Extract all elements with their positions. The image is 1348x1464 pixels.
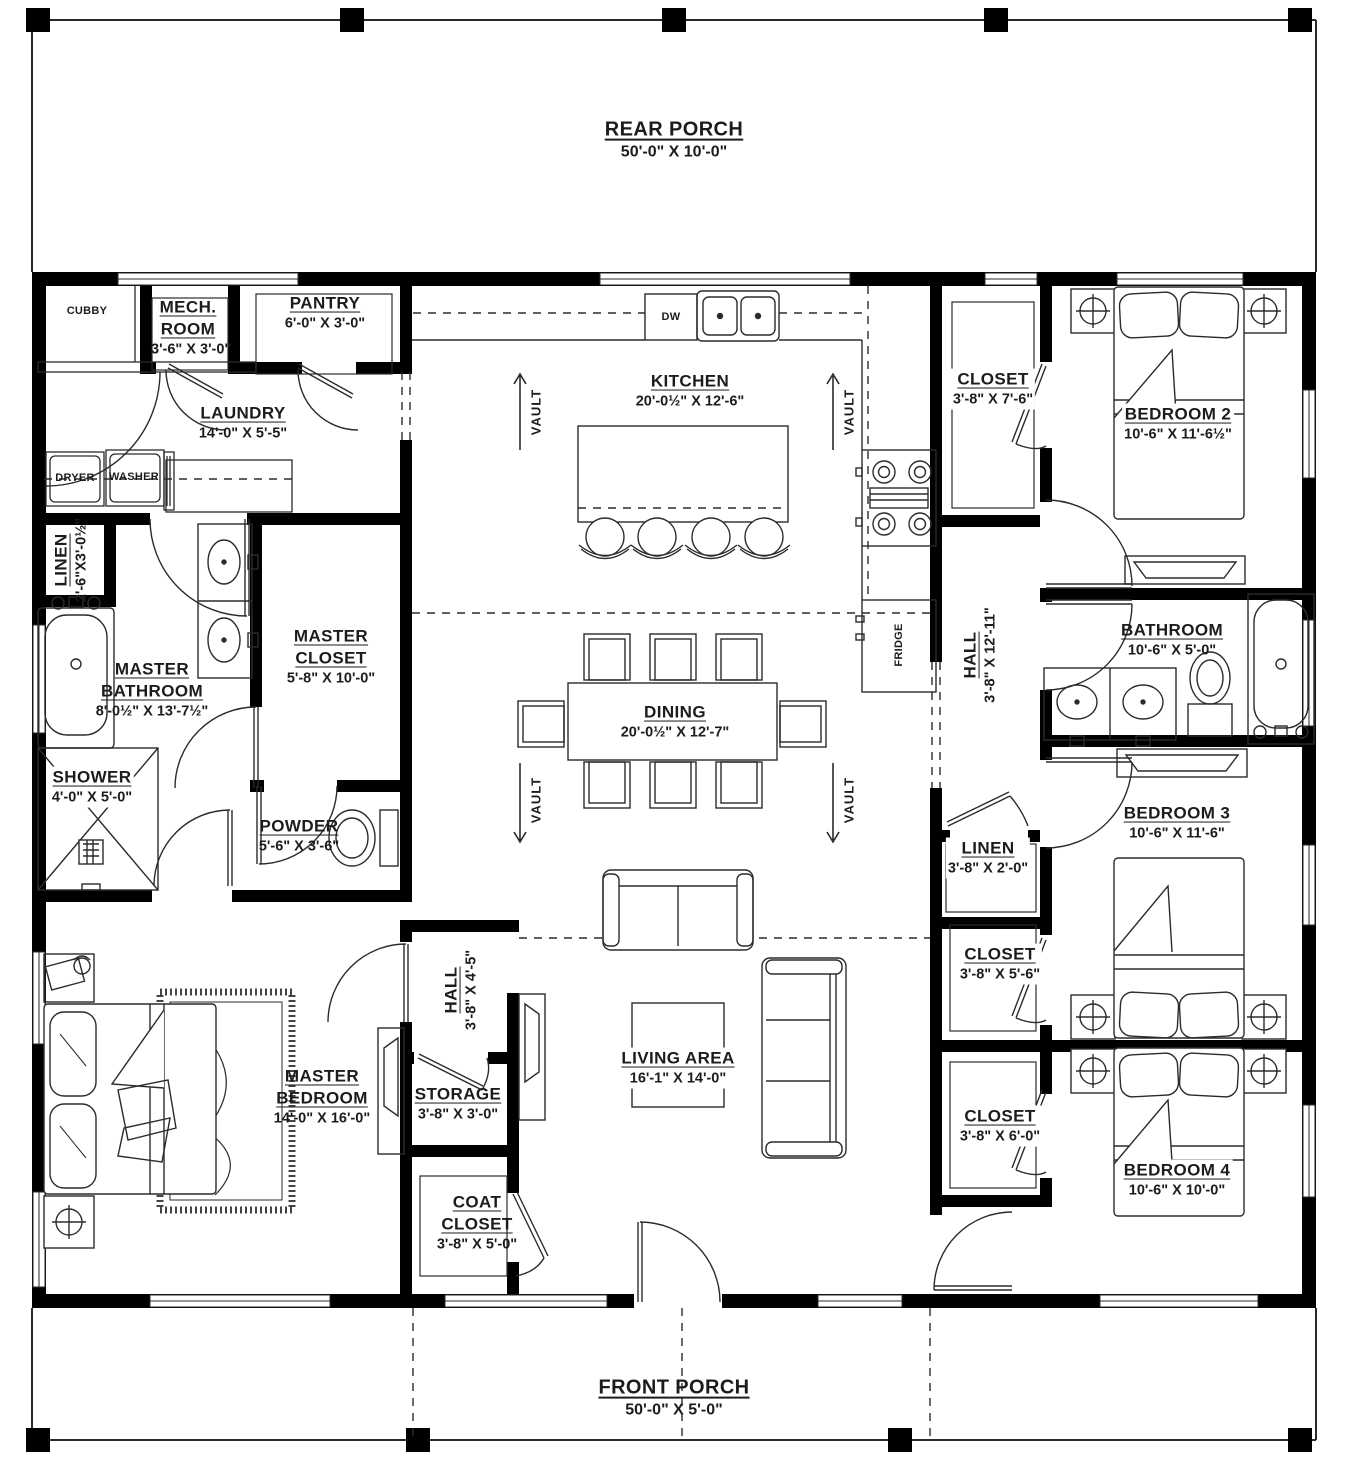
vault-label: VAULT (842, 777, 857, 823)
label-cubby: CUBBY (67, 305, 108, 317)
room-label-closet-bedroom4: CLOSET3'-8" X 6'-0" (958, 1106, 1042, 1147)
kitchen-fixtures (412, 291, 936, 692)
living-furniture (519, 870, 846, 1158)
room-label-closet-bedroom3: CLOSET3'-8" X 5'-6" (958, 944, 1042, 985)
room-label-bedroom3: BEDROOM 310'-6" X 11'-6" (1122, 803, 1233, 844)
label-washer: WASHER (109, 471, 159, 483)
room-label-hall-center: HALL3'-8" X 4'-5" (441, 948, 482, 1032)
label-dryer: DRYER (55, 472, 95, 484)
room-label-rear-porch: REAR PORCH50'-0" X 10'-0" (603, 117, 745, 164)
bathroom-fixtures (1044, 594, 1314, 746)
dashed-lines (44, 286, 940, 1440)
room-label-closet-bedroom2: CLOSET3'-8" X 7'-6" (951, 369, 1035, 410)
vault-label: VAULT (529, 389, 544, 435)
room-label-master-bedroom: MASTER BEDROOM14'-0" X 16'-0" (260, 1065, 384, 1128)
label-dishwasher: DW (662, 311, 681, 323)
room-label-master-closet: MASTER CLOSET5'-8" X 10'-0" (281, 625, 381, 688)
room-label-front-porch: FRONT PORCH50'-0" X 5'-0" (596, 1375, 751, 1422)
floor-plan: REAR PORCH50'-0" X 10'-0" FRONT PORCH50'… (0, 0, 1348, 1464)
room-label-mech-room: MECH. ROOM3'-6" X 3'-0" (149, 296, 227, 359)
vault-label: VAULT (529, 777, 544, 823)
room-label-laundry: LAUNDRY14'-0" X 5'-5" (197, 403, 289, 444)
bedroom3-furniture (1071, 749, 1286, 1039)
room-label-hall-right: HALL3'-8" X 12'-11" (960, 605, 1001, 705)
room-label-master-bathroom: MASTER BATHROOM8'-0½" X 13'-7½" (90, 658, 214, 721)
room-label-linen-right: LINEN3'-8" X 2'-0" (946, 838, 1030, 879)
room-label-pantry: PANTRY6'-0" X 3'-0" (283, 293, 367, 334)
room-label-dining: DINING20'-0½" X 12'-7" (619, 702, 732, 743)
room-label-powder: POWDER5'-6" X 3'-6" (257, 816, 341, 857)
vault-label: VAULT (842, 389, 857, 435)
room-label-bathroom: BATHROOM10'-6" X 5'-0" (1119, 620, 1225, 661)
room-label-kitchen: KITCHEN20'-0½" X 12'-6" (634, 371, 747, 412)
room-label-living-area: LIVING AREA16'-1" X 14'-0" (619, 1048, 736, 1089)
room-label-coat-closet: COAT CLOSET3'-8" X 5'-0" (433, 1191, 521, 1254)
room-label-linen-left: LINEN2'-6"X3'-0½" (51, 516, 92, 604)
room-label-shower: SHOWER4'-0" X 5'-0" (50, 767, 134, 808)
room-label-bedroom4: BEDROOM 410'-6" X 10'-0" (1122, 1160, 1233, 1201)
label-fridge: FRIDGE (893, 623, 905, 666)
room-label-bedroom2: BEDROOM 210'-6" X 11'-6½" (1122, 404, 1234, 445)
room-label-storage: STORAGE3'-8" X 3'-0" (413, 1084, 504, 1125)
